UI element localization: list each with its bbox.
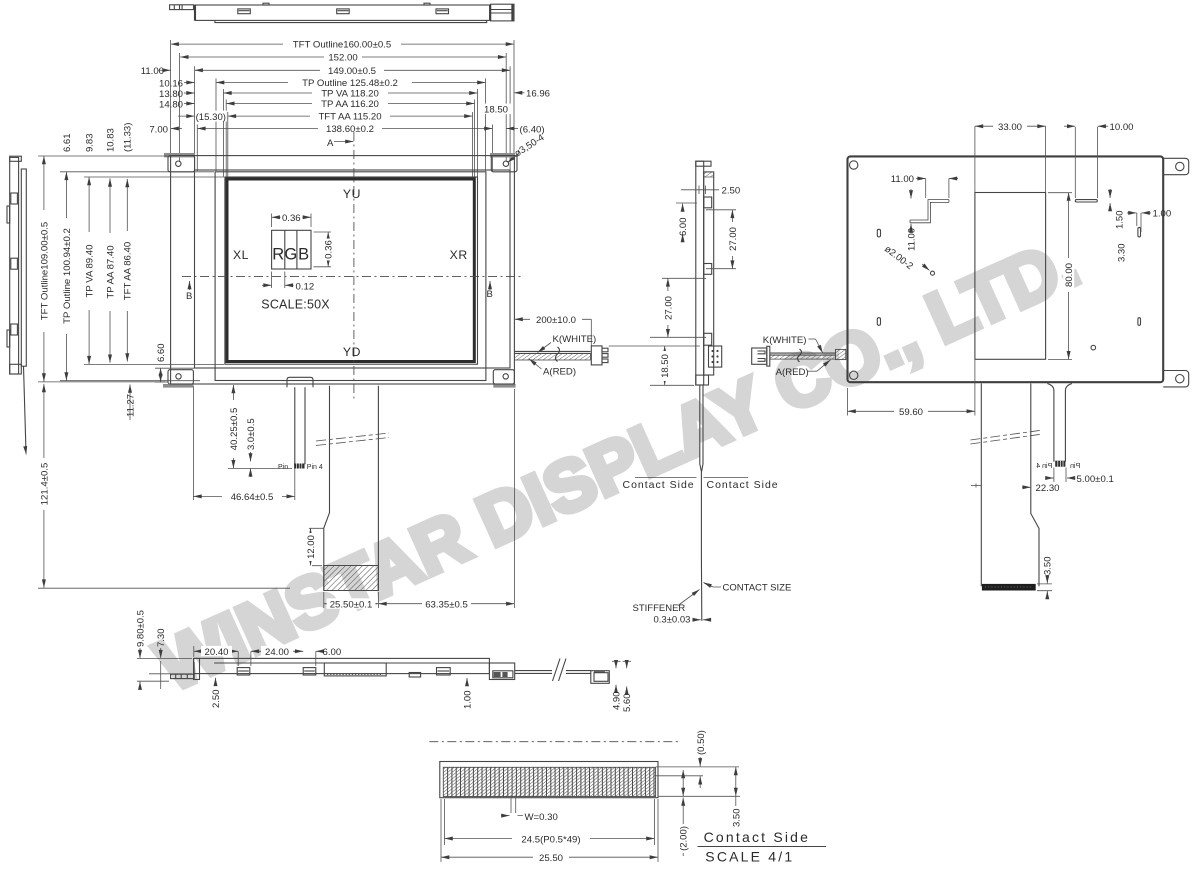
svg-text:A: A [327, 138, 334, 149]
svg-text:2.50: 2.50 [211, 690, 222, 709]
svg-text:7.30: 7.30 [156, 629, 167, 648]
svg-text:A(RED): A(RED) [543, 367, 576, 378]
svg-text:A(RED): A(RED) [776, 367, 809, 378]
svg-text:TP AA 87.40: TP AA 87.40 [105, 245, 116, 298]
svg-text:TFT Outline160.00±0.5: TFT Outline160.00±0.5 [293, 40, 391, 51]
svg-text:5.60: 5.60 [622, 694, 633, 713]
svg-text:80.00: 80.00 [1064, 263, 1075, 287]
svg-text:1.00: 1.00 [1153, 209, 1172, 220]
svg-text:14.80: 14.80 [159, 99, 183, 110]
svg-text:24.00: 24.00 [265, 647, 289, 658]
svg-text:TFT Outline109.00±0.5: TFT Outline109.00±0.5 [39, 222, 50, 320]
svg-text:149.00±0.5: 149.00±0.5 [328, 66, 376, 77]
svg-text:13.80: 13.80 [159, 89, 183, 100]
svg-text:B: B [487, 289, 493, 300]
svg-text:4.90: 4.90 [611, 692, 622, 711]
svg-text:Contact Side: Contact Side [707, 479, 779, 491]
svg-text:YU: YU [343, 187, 361, 201]
svg-text:1.00: 1.00 [463, 691, 474, 710]
svg-text:G: G [284, 246, 297, 264]
svg-text:W=0.30: W=0.30 [525, 812, 558, 823]
svg-text:11.00: 11.00 [141, 66, 164, 77]
svg-text:27.00: 27.00 [663, 296, 674, 320]
svg-text:3.50: 3.50 [1043, 557, 1054, 576]
svg-text:10.00: 10.00 [1110, 122, 1134, 133]
svg-text:Pin: Pin [1070, 463, 1080, 470]
svg-text:12.00: 12.00 [306, 535, 317, 559]
svg-text:5.00±0.1: 5.00±0.1 [1077, 474, 1114, 485]
svg-text:TP VA 89.40: TP VA 89.40 [85, 245, 96, 298]
svg-text:TP AA 116.20: TP AA 116.20 [321, 99, 379, 110]
svg-text:6.00: 6.00 [678, 218, 689, 237]
svg-text:6.60: 6.60 [156, 344, 167, 363]
svg-text:59.60: 59.60 [899, 407, 923, 418]
svg-text:11.27: 11.27 [125, 394, 136, 417]
svg-text:XL: XL [233, 248, 249, 262]
svg-text:25.50: 25.50 [539, 853, 563, 864]
svg-text:3.50: 3.50 [731, 809, 742, 828]
svg-text:11.00: 11.00 [891, 174, 914, 185]
svg-text:K(WHITE): K(WHITE) [553, 334, 597, 345]
svg-text:9.83: 9.83 [85, 134, 96, 153]
svg-text:(0.50): (0.50) [696, 730, 707, 755]
svg-text:40.25±0.5: 40.25±0.5 [229, 408, 240, 451]
svg-text:6.61: 6.61 [62, 134, 73, 153]
svg-text:0.12: 0.12 [296, 281, 315, 292]
svg-text:TP Outline 125.48±0.2: TP Outline 125.48±0.2 [302, 78, 398, 89]
svg-text:25.50±0.1: 25.50±0.1 [330, 600, 373, 611]
svg-text:27.00: 27.00 [728, 227, 739, 251]
svg-text:0.36: 0.36 [323, 240, 334, 259]
svg-text:SCALE:50X: SCALE:50X [261, 298, 330, 312]
svg-text:18.50: 18.50 [660, 354, 671, 378]
svg-text:XR: XR [450, 248, 468, 262]
svg-text:9.80±0.5: 9.80±0.5 [135, 610, 146, 647]
svg-text:YD: YD [343, 345, 361, 359]
svg-text:TFT AA 115.20: TFT AA 115.20 [318, 112, 381, 123]
svg-text:(15.30): (15.30) [196, 112, 226, 123]
svg-text:63.35±0.5: 63.35±0.5 [425, 600, 468, 611]
svg-text:33.00: 33.00 [998, 122, 1022, 133]
svg-text:10.16: 10.16 [159, 78, 183, 89]
svg-text:TFT AA 86.40: TFT AA 86.40 [123, 242, 134, 301]
svg-text:0.36: 0.36 [282, 213, 301, 224]
svg-text:(11.33): (11.33) [123, 123, 134, 152]
svg-text:16.96: 16.96 [526, 89, 550, 100]
svg-text:200±10.0: 200±10.0 [536, 315, 576, 326]
svg-text:1.50: 1.50 [1115, 211, 1126, 230]
svg-text:22.30: 22.30 [1036, 483, 1060, 494]
svg-text:CONTACT SIZE: CONTACT SIZE [723, 583, 792, 594]
svg-text:B: B [298, 246, 309, 264]
svg-text:3.30: 3.30 [1117, 244, 1128, 263]
svg-text:121.4±0.5: 121.4±0.5 [39, 463, 50, 506]
svg-text:0.3±0.03: 0.3±0.03 [654, 615, 691, 626]
svg-text:24.5(P0.5*49): 24.5(P0.5*49) [521, 834, 580, 845]
svg-text:SCALE 4/1: SCALE 4/1 [705, 849, 794, 865]
svg-text:K(WHITE): K(WHITE) [763, 335, 807, 346]
svg-text:18.50: 18.50 [484, 105, 508, 116]
svg-text:B: B [186, 291, 192, 302]
svg-text:7.00: 7.00 [149, 124, 168, 135]
svg-text:TP Outline 100.94±0.2: TP Outline 100.94±0.2 [62, 228, 73, 324]
svg-text:STIFFENER: STIFFENER [633, 603, 686, 614]
svg-text:Pin: Pin [278, 464, 288, 471]
svg-text:152.00: 152.00 [328, 53, 357, 64]
svg-text:3.0±0.5: 3.0±0.5 [246, 418, 257, 450]
svg-text:2.50: 2.50 [722, 186, 741, 197]
svg-text:(2.00): (2.00) [679, 826, 690, 851]
svg-text:10.83: 10.83 [105, 128, 116, 152]
svg-text:Contact Side: Contact Side [704, 829, 811, 845]
svg-text:TP VA 118.20: TP VA 118.20 [321, 89, 379, 100]
svg-text:R: R [272, 246, 284, 264]
svg-text:Pin 4: Pin 4 [307, 464, 323, 471]
svg-text:20.40: 20.40 [204, 647, 228, 658]
svg-text:Contact Side: Contact Side [623, 479, 695, 491]
svg-text:Pin 4: Pin 4 [1036, 463, 1052, 470]
svg-text:6.00: 6.00 [323, 647, 342, 658]
svg-text:11.00: 11.00 [907, 228, 918, 251]
svg-text:46.64±0.5: 46.64±0.5 [231, 492, 274, 503]
svg-text:138.60±0.2: 138.60±0.2 [326, 124, 374, 135]
